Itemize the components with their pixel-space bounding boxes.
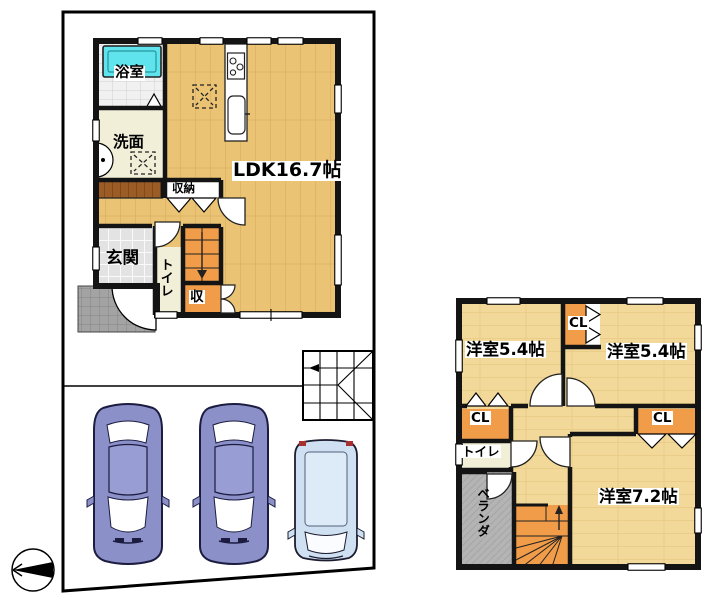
room-label-entrance: 玄関 xyxy=(105,249,140,266)
parking-car-2 xyxy=(193,404,275,564)
exterior-stairs xyxy=(303,351,373,420)
kitchen-sink xyxy=(228,96,245,134)
room-label-washroom: 洗面 xyxy=(112,134,145,150)
compass-north-icon xyxy=(12,549,54,591)
room-label-bedroom-right: 洋室5.4帖 xyxy=(606,343,687,360)
parking-car-1 xyxy=(87,404,169,564)
floorplan-canvas: LDK16.7帖 浴室 洗面 玄関 トイレ 収納 収 洋室5.4帖 洋室5.4帖… xyxy=(0,0,710,604)
second-floor-plan xyxy=(456,298,702,571)
room-label-ldk: LDK16.7帖 xyxy=(232,161,342,181)
room-label-veranda: ベランダ xyxy=(476,486,489,538)
room-label-storage: 収納 xyxy=(171,182,196,194)
room-label-bath: 浴室 xyxy=(114,66,145,81)
first-floor-plan xyxy=(78,38,341,332)
kitchen-stove xyxy=(228,53,245,79)
room-label-toilet-2f: トイレ xyxy=(461,445,501,458)
room-label-closet-right: CL xyxy=(652,411,673,425)
room-label-storage-small: 収 xyxy=(189,290,205,304)
room-label-toilet-1f: トイレ xyxy=(158,257,172,298)
room-label-closet-top: CL xyxy=(568,316,589,330)
parking-car-3 xyxy=(288,440,364,561)
room-label-closet-left: CL xyxy=(470,411,491,425)
room-label-bedroom-left: 洋室5.4帖 xyxy=(465,341,546,358)
room-label-bedroom-large: 洋室7.2帖 xyxy=(598,488,679,505)
hall-counter xyxy=(96,182,163,198)
floorplan-graphic xyxy=(0,0,710,604)
